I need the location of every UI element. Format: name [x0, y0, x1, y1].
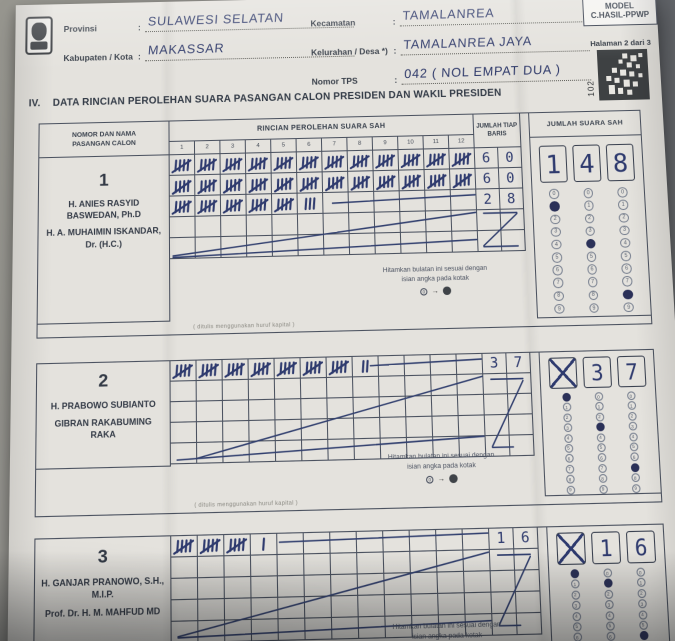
- bubble-digit-9[interactable]: 9: [599, 484, 608, 493]
- tally-cell[interactable]: [458, 395, 485, 416]
- bubble-digit-1[interactable]: 1: [636, 578, 645, 587]
- bubble-digit-2[interactable]: 2: [619, 213, 629, 223]
- tally-cell[interactable]: [354, 397, 381, 418]
- row-total-digit[interactable]: [507, 373, 531, 394]
- row-total-digit[interactable]: 7: [506, 353, 530, 374]
- handwritten-value: TAMALANREA: [402, 6, 495, 23]
- tally-cell[interactable]: [225, 577, 252, 599]
- tally-cell[interactable]: [195, 216, 221, 237]
- tally-cell[interactable]: [357, 531, 384, 553]
- bubble-digit-5[interactable]: 5: [597, 443, 606, 452]
- row-total-digit[interactable]: 6: [475, 148, 499, 169]
- tally-cell[interactable]: [430, 355, 457, 376]
- tally-cell[interactable]: [425, 190, 451, 211]
- bubble-digit-3[interactable]: 3: [619, 225, 629, 235]
- grand-total-digit-box[interactable]: [548, 357, 578, 389]
- tally-cell[interactable]: [301, 378, 327, 399]
- tally-cell[interactable]: [350, 234, 376, 256]
- bubble-digit-8[interactable]: 8: [623, 289, 633, 299]
- bubble-digit-6[interactable]: 6: [639, 631, 648, 640]
- bubble-digit-9[interactable]: 9: [589, 303, 599, 313]
- tally-cell[interactable]: [328, 439, 355, 460]
- bubble-digit-5[interactable]: 5: [586, 252, 596, 262]
- bubble-digit-3[interactable]: 3: [563, 423, 572, 432]
- tally-cell[interactable]: [223, 380, 249, 401]
- tally-cell[interactable]: [332, 617, 359, 639]
- tally-cell[interactable]: [383, 531, 410, 553]
- bubble-digit-9[interactable]: 9: [624, 302, 634, 312]
- tally-cell[interactable]: [251, 576, 278, 598]
- bubble-digit-1[interactable]: 1: [549, 201, 559, 211]
- tally-cell[interactable]: [252, 619, 279, 641]
- tally-cell[interactable]: [196, 237, 222, 259]
- tally-cell[interactable]: [374, 171, 400, 192]
- tally-cell[interactable]: [304, 533, 331, 555]
- tally-mark: [451, 152, 472, 166]
- tally-cell[interactable]: [463, 550, 490, 572]
- bubble-digit-6[interactable]: 6: [552, 265, 562, 275]
- bubble-digit-6[interactable]: 6: [597, 453, 606, 462]
- tally-cell[interactable]: [399, 170, 425, 191]
- tally-cell[interactable]: [223, 359, 249, 380]
- bubble-digit-3[interactable]: 3: [637, 599, 646, 608]
- tally-cell[interactable]: [327, 398, 354, 419]
- tally-cell[interactable]: [398, 149, 424, 170]
- tally-cell[interactable]: [358, 595, 385, 617]
- tally-cell[interactable]: [463, 529, 490, 551]
- tally-cell[interactable]: [459, 415, 486, 436]
- tally-cell[interactable]: [249, 379, 275, 400]
- row-total-digit[interactable]: 6: [475, 168, 499, 189]
- bubble-digit-1[interactable]: 1: [570, 580, 579, 589]
- tally-cell[interactable]: [221, 174, 247, 195]
- tally-cell[interactable]: [247, 236, 273, 258]
- tally-cell[interactable]: [302, 419, 329, 440]
- tally-cell[interactable]: [456, 354, 483, 375]
- tally-cell[interactable]: [432, 416, 459, 437]
- bubble-digit-0[interactable]: 0: [583, 188, 593, 198]
- tally-cell[interactable]: [252, 598, 279, 620]
- column-header-nomor-dan-nama: NOMOR DAN NAMA PASANGAN CALON: [39, 122, 168, 159]
- row-total-digit[interactable]: [478, 231, 502, 252]
- tally-cell[interactable]: [401, 232, 427, 254]
- row-total-digit[interactable]: 1: [489, 528, 514, 550]
- bubble-digit-7[interactable]: 7: [588, 277, 598, 287]
- tally-cell[interactable]: [298, 214, 324, 235]
- bubble-digit-8[interactable]: 8: [554, 291, 564, 301]
- tally-column-number: 3: [220, 140, 246, 154]
- tally-cell[interactable]: [171, 443, 197, 464]
- tally-cell[interactable]: [221, 154, 247, 175]
- tally-cell[interactable]: [170, 196, 196, 217]
- bubble-digit-2[interactable]: 2: [604, 590, 613, 599]
- tally-cell[interactable]: [221, 236, 247, 258]
- tally-cell[interactable]: [272, 173, 298, 194]
- bubble-digit-6[interactable]: 6: [573, 633, 582, 641]
- grand-total-digit-box[interactable]: 4: [572, 145, 601, 183]
- tally-cell[interactable]: [384, 573, 411, 595]
- tally-cell[interactable]: [437, 551, 464, 573]
- tally-cell[interactable]: [464, 571, 491, 593]
- tally-cell[interactable]: [247, 215, 273, 236]
- bubble-digit-0[interactable]: 0: [570, 569, 579, 578]
- tally-cell[interactable]: [246, 194, 272, 215]
- tally-cell[interactable]: [251, 534, 278, 556]
- grand-total-digit-box[interactable]: 6: [626, 530, 656, 563]
- tally-cell[interactable]: [438, 593, 465, 615]
- row-total-digit[interactable]: [500, 209, 524, 230]
- bubble-digit-3[interactable]: 3: [596, 423, 605, 432]
- bubble-digit-5[interactable]: 5: [621, 251, 631, 261]
- grand-total-digit-box[interactable]: 8: [606, 144, 635, 182]
- tally-cell[interactable]: [250, 441, 277, 462]
- tally-cell[interactable]: [198, 578, 225, 600]
- bubble-digit-4[interactable]: 4: [605, 611, 614, 620]
- tally-cell[interactable]: [323, 192, 349, 213]
- tally-cell[interactable]: [424, 149, 450, 170]
- tally-cell[interactable]: [223, 421, 249, 442]
- tally-cell[interactable]: [427, 232, 453, 254]
- tally-cell[interactable]: [322, 151, 348, 172]
- tally-cell[interactable]: [197, 380, 223, 401]
- bubble-digit-2[interactable]: 2: [563, 413, 572, 422]
- bubble-digit-1[interactable]: 1: [584, 201, 594, 211]
- tally-cell[interactable]: [410, 530, 437, 552]
- tally-cell[interactable]: [221, 195, 247, 216]
- bubble-digit-5[interactable]: 5: [639, 621, 648, 630]
- tally-cell[interactable]: [380, 397, 407, 418]
- row-total-row: 37: [482, 353, 530, 375]
- tally-cell[interactable]: [172, 621, 199, 641]
- row-total-digit[interactable]: 2: [476, 189, 500, 210]
- candidate-name-cell: 2H. PRABOWO SUBIANTOGIBRAN RAKABUMING RA…: [36, 361, 171, 470]
- tally-cell[interactable]: [375, 212, 401, 233]
- tally-cell[interactable]: [301, 399, 328, 420]
- bubble-digit-9[interactable]: 9: [554, 304, 564, 314]
- bubble-digit-5[interactable]: 5: [572, 622, 581, 631]
- tally-cell[interactable]: [171, 600, 198, 622]
- tally-cell[interactable]: [249, 420, 275, 441]
- bubble-digit-3[interactable]: 3: [571, 601, 580, 610]
- tally-cell[interactable]: [405, 376, 432, 397]
- tally-cell[interactable]: [449, 148, 475, 169]
- tally-cell[interactable]: [277, 533, 304, 555]
- bubble-digit-7[interactable]: 7: [553, 278, 563, 288]
- row-total-row: [485, 414, 533, 436]
- tally-cell[interactable]: [353, 356, 380, 377]
- tally-cell[interactable]: [375, 233, 401, 255]
- tally-cell[interactable]: [171, 578, 198, 600]
- tally-cell[interactable]: [302, 440, 329, 461]
- bubble-column: 0123456789: [626, 391, 640, 494]
- bubble-digit-6[interactable]: 6: [606, 632, 615, 641]
- bubble-digit-4[interactable]: 4: [572, 612, 581, 621]
- bubble-digit-9[interactable]: 9: [631, 484, 640, 493]
- tally-cell[interactable]: [331, 553, 358, 575]
- bubble-digit-2[interactable]: 2: [637, 589, 646, 598]
- tally-cell[interactable]: [171, 557, 198, 579]
- tally-cell[interactable]: [198, 535, 225, 557]
- row-total-digit[interactable]: [491, 592, 516, 614]
- bubble-digit-1[interactable]: 1: [618, 200, 628, 210]
- tally-column-number: 9: [373, 137, 399, 151]
- tally-cell[interactable]: [425, 169, 451, 190]
- tally-cell[interactable]: [279, 619, 306, 641]
- tally-cell[interactable]: [251, 555, 278, 577]
- bubble-digit-4[interactable]: 4: [551, 240, 561, 250]
- tally-cell[interactable]: [271, 152, 297, 173]
- tally-cell[interactable]: [349, 192, 375, 213]
- bubble-digit-9[interactable]: 9: [566, 485, 575, 494]
- bubble-digit-6[interactable]: 6: [621, 264, 631, 274]
- tally-cell[interactable]: [373, 150, 399, 171]
- tally-cell[interactable]: [246, 153, 272, 174]
- tally-cell[interactable]: [195, 175, 221, 196]
- bubble-digit-2[interactable]: 2: [627, 412, 636, 421]
- tally-cell[interactable]: [170, 361, 196, 382]
- tally-cell[interactable]: [348, 151, 374, 172]
- tally-cell[interactable]: [379, 356, 406, 377]
- tally-cell[interactable]: [170, 238, 196, 260]
- tally-cell[interactable]: [272, 214, 298, 235]
- bubble-digit-7[interactable]: 7: [565, 464, 574, 473]
- tally-cell[interactable]: [431, 375, 458, 396]
- tally-cell[interactable]: [225, 620, 252, 641]
- tally-cell[interactable]: [195, 195, 221, 216]
- tally-cell[interactable]: [198, 599, 225, 621]
- tally-cell[interactable]: [323, 172, 349, 193]
- tally-cell[interactable]: [357, 553, 384, 575]
- tally-cell[interactable]: [298, 235, 324, 257]
- tally-cell[interactable]: [278, 554, 305, 576]
- tally-cell[interactable]: [432, 395, 459, 416]
- tally-cell[interactable]: [197, 360, 223, 381]
- tally-cell[interactable]: [406, 396, 433, 417]
- bubble-digit-6[interactable]: 6: [565, 454, 574, 463]
- tally-cell[interactable]: [249, 400, 275, 421]
- tally-cell[interactable]: [405, 355, 432, 376]
- bubble-digit-3[interactable]: 3: [628, 422, 637, 431]
- tally-cell[interactable]: [223, 400, 249, 421]
- tally-cell[interactable]: [385, 595, 412, 617]
- bubble-digit-4[interactable]: 4: [629, 432, 638, 441]
- bubble-digit-0[interactable]: 0: [594, 392, 603, 401]
- tally-cell[interactable]: [225, 598, 252, 620]
- bubble-digit-0[interactable]: 0: [617, 187, 627, 197]
- tally-cell[interactable]: [276, 441, 303, 462]
- row-total-digit[interactable]: [491, 571, 516, 593]
- tally-cell[interactable]: [374, 191, 400, 212]
- row-total-digit[interactable]: 8: [499, 188, 523, 209]
- tally-cell[interactable]: [275, 399, 301, 420]
- row-total-digit[interactable]: [507, 394, 531, 415]
- tally-cell[interactable]: [380, 417, 407, 438]
- tally-cell[interactable]: [301, 358, 327, 379]
- bubble-digit-1[interactable]: 1: [562, 403, 571, 412]
- bubble-digit-0[interactable]: 0: [603, 568, 612, 577]
- bubble-digit-8[interactable]: 8: [588, 290, 598, 300]
- tally-cell[interactable]: [298, 193, 324, 214]
- tally-cell[interactable]: [275, 379, 301, 400]
- tally-cell[interactable]: [170, 175, 196, 196]
- tally-cell[interactable]: [327, 357, 353, 378]
- tally-cell[interactable]: [452, 231, 478, 253]
- row-total-digit[interactable]: 3: [482, 353, 506, 374]
- bubble-digit-0[interactable]: 0: [562, 393, 571, 402]
- bubble-digit-5[interactable]: 5: [552, 252, 562, 262]
- tally-cell[interactable]: [305, 618, 332, 640]
- bubble-digit-5[interactable]: 5: [605, 621, 614, 630]
- tally-cell[interactable]: [273, 235, 299, 257]
- tally-cell[interactable]: [400, 211, 426, 232]
- tally-cell[interactable]: [224, 534, 251, 556]
- bubble-digit-5[interactable]: 5: [629, 442, 638, 451]
- bubble-digit-2[interactable]: 2: [550, 214, 560, 224]
- tally-cell[interactable]: [249, 359, 275, 380]
- tally-cell[interactable]: [171, 402, 197, 423]
- tally-cell[interactable]: [354, 418, 381, 439]
- tally-cell[interactable]: [436, 529, 463, 551]
- tally-cell[interactable]: [465, 593, 492, 615]
- row-total-digit[interactable]: [477, 210, 501, 231]
- tally-cell[interactable]: [410, 551, 437, 573]
- bubble-digit-6[interactable]: 6: [587, 264, 597, 274]
- bubble-digit-1[interactable]: 1: [595, 402, 604, 411]
- tally-cell[interactable]: [349, 213, 375, 234]
- row-total-digit[interactable]: [485, 415, 509, 436]
- bubble-digit-1[interactable]: 1: [603, 579, 612, 588]
- bubble-digit-4[interactable]: 4: [596, 433, 605, 442]
- bubble-digit-2[interactable]: 2: [571, 590, 580, 599]
- tally-cell[interactable]: [331, 574, 358, 596]
- grand-total-digit-box[interactable]: [556, 532, 586, 565]
- row-total-digit[interactable]: 6: [513, 528, 538, 550]
- row-total-row: 60: [475, 147, 522, 169]
- tally-cell[interactable]: [195, 154, 221, 175]
- tally-cell[interactable]: [332, 596, 359, 618]
- tally-cell[interactable]: [221, 216, 247, 237]
- bubble-digit-2[interactable]: 2: [595, 412, 604, 421]
- tally-cell[interactable]: [304, 575, 331, 597]
- row-total-digit[interactable]: [490, 549, 515, 571]
- bubble-digit-1[interactable]: 1: [627, 401, 636, 410]
- bubble-digit-7[interactable]: 7: [622, 276, 632, 286]
- tally-mark: [350, 154, 371, 168]
- tally-cell[interactable]: [278, 576, 305, 598]
- tally-cell[interactable]: [328, 419, 355, 440]
- grand-total-digit-box[interactable]: 1: [591, 531, 621, 564]
- row-total-digit[interactable]: 0: [498, 168, 522, 189]
- tally-cell[interactable]: [353, 377, 380, 398]
- tally-cell[interactable]: [324, 213, 350, 234]
- row-total-digit[interactable]: [515, 592, 540, 614]
- bubble-digit-8[interactable]: 8: [566, 475, 575, 484]
- tally-cell[interactable]: [297, 172, 323, 193]
- row-total-digit[interactable]: [501, 230, 525, 251]
- candidate-block-main: 2H. PRABOWO SUBIANTOGIBRAN RAKABUMING RA…: [36, 350, 662, 516]
- bubble-digit-0[interactable]: 0: [549, 189, 559, 199]
- bubble-digit-3[interactable]: 3: [604, 600, 613, 609]
- tally-cell[interactable]: [272, 194, 298, 215]
- bubble-digit-6[interactable]: 6: [630, 453, 639, 462]
- tally-cell[interactable]: [358, 574, 385, 596]
- row-total-column: JUMLAH TIAP BARIS606028: [473, 114, 525, 253]
- tally-cell[interactable]: [457, 374, 484, 395]
- tally-cell[interactable]: [330, 532, 357, 554]
- tally-cell[interactable]: [426, 211, 452, 232]
- tally-cell[interactable]: [170, 217, 196, 238]
- bubble-digit-3[interactable]: 3: [551, 227, 561, 237]
- tally-cell[interactable]: [412, 594, 439, 616]
- tally-cell[interactable]: [324, 234, 350, 256]
- tally-cell[interactable]: [197, 442, 223, 463]
- tally-cell[interactable]: [304, 554, 331, 576]
- bubble-digit-4[interactable]: 4: [586, 239, 596, 249]
- tally-cell[interactable]: [379, 376, 406, 397]
- grand-total-digit-box[interactable]: 1: [539, 145, 568, 183]
- tally-cell[interactable]: [305, 597, 332, 619]
- grand-total-digit-box[interactable]: 7: [617, 355, 647, 387]
- tally-cell[interactable]: [400, 191, 426, 212]
- bubble-digit-5[interactable]: 5: [564, 444, 573, 453]
- tally-cell[interactable]: [275, 420, 302, 441]
- bubble-digit-8[interactable]: 8: [598, 474, 607, 483]
- tally-cell[interactable]: [197, 401, 223, 422]
- tally-cell[interactable]: [275, 358, 301, 379]
- row-total-digit[interactable]: [484, 394, 508, 415]
- tally-cell[interactable]: [198, 556, 225, 578]
- tally-cell[interactable]: [451, 210, 477, 231]
- bubble-digit-4[interactable]: 4: [564, 434, 573, 443]
- tally-cell[interactable]: [223, 442, 250, 463]
- bubble-digit-4[interactable]: 4: [638, 610, 647, 619]
- bubble-digit-8[interactable]: 8: [631, 473, 640, 482]
- tally-cell[interactable]: [450, 169, 476, 190]
- tally-cell[interactable]: [171, 422, 197, 443]
- bubble-digit-4[interactable]: 4: [620, 238, 630, 248]
- row-total-digit[interactable]: 0: [498, 147, 522, 168]
- grand-total-digit-box[interactable]: 3: [582, 356, 612, 388]
- bubble-digit-3[interactable]: 3: [585, 226, 595, 236]
- tally-cell[interactable]: [451, 190, 477, 211]
- row-total-digit[interactable]: [515, 570, 540, 592]
- row-total-digit[interactable]: [483, 374, 507, 395]
- fill-bubble-note: Hitamkan bulatan ini sesuai denganisian …: [360, 620, 535, 641]
- tally-cell[interactable]: [170, 155, 196, 176]
- bubble-digit-7[interactable]: 7: [630, 463, 639, 472]
- bubble-digit-2[interactable]: 2: [584, 213, 594, 223]
- row-total-digit[interactable]: [514, 549, 539, 571]
- tally-cell[interactable]: [171, 381, 197, 402]
- tally-cell[interactable]: [224, 556, 251, 578]
- tally-cell[interactable]: [246, 174, 272, 195]
- tally-cell[interactable]: [278, 597, 305, 619]
- tally-cell[interactable]: [327, 377, 354, 398]
- bubble-digit-0[interactable]: 0: [626, 391, 635, 400]
- bubble-digit-0[interactable]: 0: [636, 568, 645, 577]
- tally-cell[interactable]: [384, 552, 411, 574]
- tally-cell[interactable]: [411, 573, 438, 595]
- tally-cell[interactable]: [198, 621, 225, 641]
- tally-cell[interactable]: [406, 417, 433, 438]
- tally-cell[interactable]: [437, 572, 464, 594]
- row-total-digit[interactable]: [508, 414, 532, 435]
- tally-cell[interactable]: [297, 152, 323, 173]
- tally-cell[interactable]: [348, 171, 374, 192]
- tally-cell[interactable]: [197, 422, 223, 443]
- tally-cell[interactable]: [171, 536, 198, 558]
- bubble-digit-7[interactable]: 7: [598, 464, 607, 473]
